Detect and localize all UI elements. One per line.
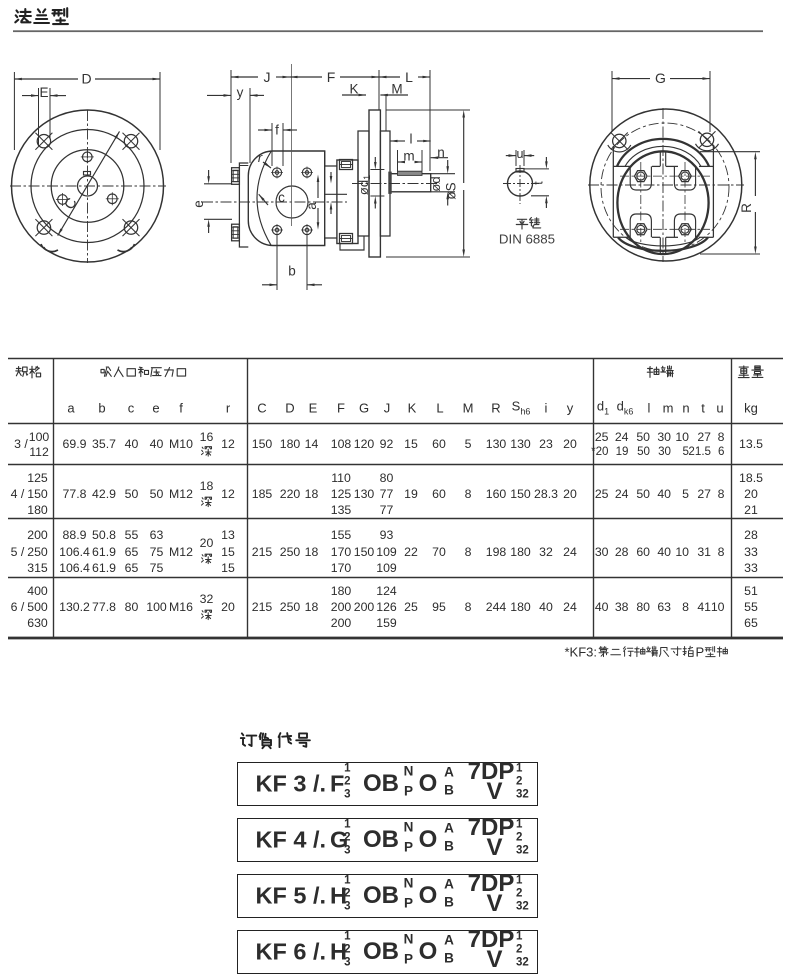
svg-text:R: R bbox=[739, 203, 754, 213]
svg-text:L: L bbox=[405, 69, 413, 85]
svg-text:t: t bbox=[532, 181, 546, 185]
svg-text:C: C bbox=[62, 195, 81, 212]
svg-text:M: M bbox=[391, 82, 402, 97]
svg-text:b: b bbox=[288, 264, 296, 279]
svg-text:e: e bbox=[191, 200, 206, 208]
svg-text:D: D bbox=[81, 71, 91, 87]
svg-text:m: m bbox=[403, 149, 414, 164]
svg-text:F: F bbox=[327, 69, 336, 85]
svg-text:øS: øS bbox=[444, 182, 459, 199]
svg-text:E: E bbox=[39, 85, 48, 100]
svg-text:ød: ød bbox=[428, 176, 443, 191]
svg-text:l: l bbox=[410, 132, 413, 147]
svg-text:G: G bbox=[655, 70, 666, 86]
svg-text:K: K bbox=[349, 82, 358, 97]
svg-text:DIN 6885: DIN 6885 bbox=[499, 232, 555, 247]
svg-text:J: J bbox=[264, 69, 271, 85]
svg-text:n: n bbox=[437, 145, 445, 160]
svg-text:y: y bbox=[237, 85, 244, 100]
svg-text:r: r bbox=[258, 150, 263, 165]
svg-text:u: u bbox=[517, 147, 524, 161]
svg-text:a: a bbox=[304, 202, 319, 210]
svg-text:c: c bbox=[278, 190, 285, 205]
svg-text:f: f bbox=[275, 123, 279, 138]
